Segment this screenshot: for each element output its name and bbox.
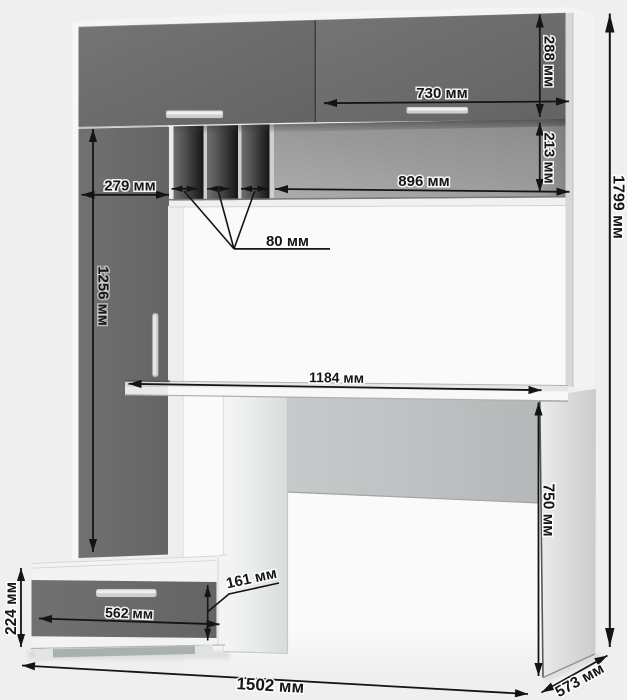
svg-text:750 мм: 750 мм (540, 483, 557, 536)
svg-text:288 мм: 288 мм (540, 36, 557, 87)
svg-text:730 мм: 730 мм (416, 85, 467, 102)
svg-text:896 мм: 896 мм (398, 173, 449, 190)
svg-text:1256 мм: 1256 мм (95, 266, 112, 326)
svg-text:1184 мм: 1184 мм (309, 369, 364, 386)
svg-text:1502 мм: 1502 мм (236, 674, 305, 697)
svg-text:562 мм: 562 мм (105, 604, 153, 622)
svg-text:224 мм: 224 мм (3, 582, 20, 635)
svg-text:279 мм: 279 мм (104, 178, 155, 195)
svg-text:213 мм: 213 мм (541, 132, 558, 183)
svg-text:80 мм: 80 мм (266, 233, 309, 250)
svg-text:1799 мм: 1799 мм (610, 175, 627, 239)
